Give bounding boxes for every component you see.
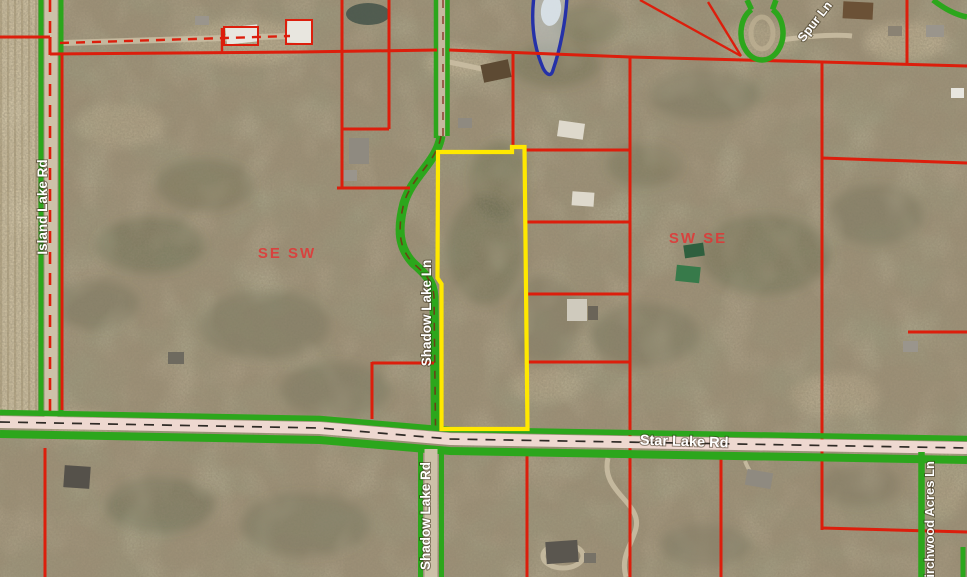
small-pond: [346, 3, 390, 25]
section-label-se-sw: SE SW: [258, 245, 316, 262]
road-label-island-lake-rd: Island Lake Rd: [35, 159, 50, 254]
section-label-sw-se: SW SE: [669, 230, 727, 247]
map-canvas[interactable]: Island Lake Rd Shadow Lake Ln Shadow Lak…: [0, 0, 967, 577]
road-label-birchwood-acres-ln: Birchwood Acres Ln: [922, 461, 937, 577]
road-label-shadow-lake-ln: Shadow Lake Ln: [419, 260, 434, 367]
road-label-shadow-lake-rd: Shadow Lake Rd: [418, 462, 433, 570]
aerial-map-svg: Island Lake Rd Shadow Lake Ln Shadow Lak…: [0, 0, 967, 577]
road-label-star-lake-rd: Star Lake Rd: [640, 433, 729, 452]
